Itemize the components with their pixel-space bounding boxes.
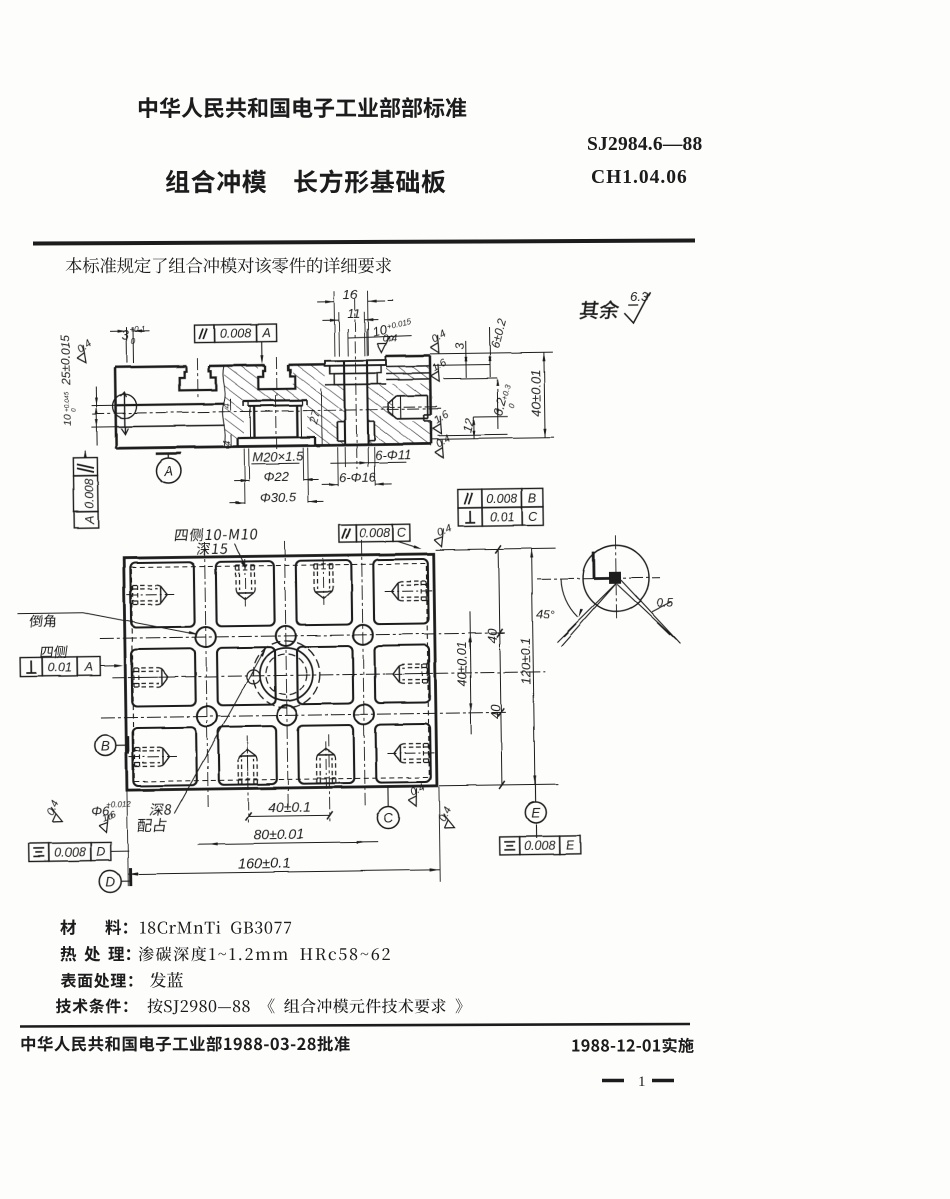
svg-text:CH1.04.06: CH1.04.06 bbox=[591, 167, 688, 188]
svg-text:16: 16 bbox=[343, 287, 358, 302]
svg-text:+0.1: +0.1 bbox=[129, 325, 145, 334]
svg-text:A: A bbox=[261, 326, 271, 340]
svg-text:0: 0 bbox=[131, 337, 136, 346]
svg-text:3: 3 bbox=[121, 327, 129, 342]
svg-text:40: 40 bbox=[485, 628, 500, 643]
svg-text:40±0.01: 40±0.01 bbox=[528, 369, 544, 416]
svg-text:C: C bbox=[528, 510, 538, 524]
svg-text:1: 1 bbox=[638, 1074, 646, 1090]
svg-text:E: E bbox=[531, 805, 541, 820]
svg-text:0.01: 0.01 bbox=[47, 660, 72, 674]
svg-text:0.008: 0.008 bbox=[220, 326, 252, 340]
svg-text:B: B bbox=[528, 491, 537, 505]
svg-text:0.008: 0.008 bbox=[82, 478, 96, 509]
svg-text:80±0.01: 80±0.01 bbox=[253, 826, 304, 843]
svg-text:0.008: 0.008 bbox=[486, 492, 518, 506]
svg-text:+0.045: +0.045 bbox=[63, 391, 70, 412]
svg-text:Φ30.5: Φ30.5 bbox=[260, 490, 297, 506]
svg-text:4: 4 bbox=[222, 403, 233, 409]
svg-text:D: D bbox=[96, 845, 105, 859]
svg-text:40±0.1: 40±0.1 bbox=[268, 799, 311, 816]
svg-text:C: C bbox=[397, 526, 407, 540]
svg-text:0.008: 0.008 bbox=[359, 526, 391, 540]
svg-text:M20×1.5: M20×1.5 bbox=[252, 449, 304, 465]
svg-text:11: 11 bbox=[347, 307, 360, 321]
svg-text:A: A bbox=[163, 463, 173, 478]
svg-text:C: C bbox=[383, 810, 393, 825]
svg-text:0.008: 0.008 bbox=[54, 845, 86, 859]
svg-text:0: 0 bbox=[71, 408, 78, 412]
svg-text:A: A bbox=[83, 660, 93, 674]
svg-text:6-Φ16: 6-Φ16 bbox=[339, 470, 377, 486]
svg-text:10: 10 bbox=[62, 414, 74, 426]
svg-text:4: 4 bbox=[222, 440, 233, 446]
svg-text:0.008: 0.008 bbox=[524, 839, 556, 853]
svg-text:25±0.015: 25±0.015 bbox=[59, 335, 74, 386]
svg-text:B: B bbox=[101, 738, 110, 753]
svg-text:160±0.1: 160±0.1 bbox=[238, 856, 291, 873]
svg-text:E: E bbox=[566, 838, 575, 852]
svg-text:120±0.1: 120±0.1 bbox=[518, 638, 534, 685]
svg-text:6-Φ11: 6-Φ11 bbox=[375, 447, 411, 463]
svg-text:40: 40 bbox=[488, 704, 503, 719]
svg-text:SJ2984.6—88: SJ2984.6—88 bbox=[587, 134, 702, 155]
svg-text:6.3: 6.3 bbox=[630, 289, 649, 304]
svg-text:0.01: 0.01 bbox=[490, 510, 515, 524]
svg-text:A: A bbox=[83, 516, 97, 525]
svg-text:Φ22: Φ22 bbox=[263, 469, 289, 484]
svg-text:+0.012: +0.012 bbox=[106, 800, 131, 809]
svg-text:3: 3 bbox=[453, 342, 467, 349]
svg-text:D: D bbox=[105, 874, 115, 889]
svg-text:0.4: 0.4 bbox=[383, 332, 398, 344]
svg-text:40±0.01: 40±0.01 bbox=[455, 641, 470, 686]
svg-text:45°: 45° bbox=[536, 607, 555, 621]
